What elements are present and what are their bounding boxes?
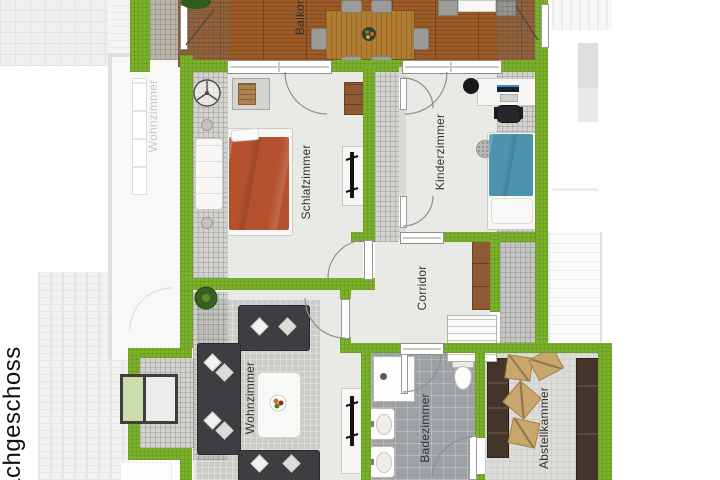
floor-plan-canvas: Balkon Wohnzimmer Schlafzimmer Kinderzim… — [0, 0, 720, 480]
neighbor-window — [132, 78, 147, 195]
left-outer-wall — [180, 55, 193, 348]
sofa-chaise-left — [197, 343, 241, 455]
shower — [373, 356, 415, 402]
coffee-table — [257, 372, 301, 438]
room-label-schlafzimmer: Schlafzimmer — [299, 144, 313, 219]
right-outer-wall — [535, 0, 548, 352]
bedroom-closet-wall — [363, 67, 375, 238]
room-label-badezimmer: Badezimmer — [418, 393, 432, 462]
kids-corridor-door-frame — [400, 232, 444, 244]
room-label-balkon: Balkon — [293, 0, 307, 35]
closet-door — [400, 78, 407, 110]
roof-overhang-hatch — [150, 0, 178, 60]
bedroom-wardrobe — [232, 78, 270, 110]
door-leaf — [341, 299, 350, 339]
office-chair — [497, 105, 521, 123]
room-label-kinderzimmer: Kinderzimmer — [433, 114, 447, 190]
monitor-icon — [497, 85, 519, 92]
neighbor-wall — [108, 53, 112, 360]
stairwell-faint-box — [578, 43, 598, 88]
corridor-left-wall — [340, 288, 351, 299]
stool-black — [463, 78, 479, 94]
entrance-stairs — [447, 315, 497, 362]
room-label-abstellkammer: Abstellkammer — [537, 387, 551, 469]
room-label-wohnzimmer: Wohnzimmer — [243, 362, 257, 434]
office-chair-armrest — [519, 107, 523, 119]
closet-kids-wall — [399, 108, 406, 196]
corridor-right-wall — [490, 232, 500, 312]
roof-slope-hatch — [500, 242, 535, 343]
neighbor-room-label: Wohnzimmer — [146, 80, 160, 152]
wall-knob — [201, 119, 213, 131]
door-leaf — [469, 436, 477, 480]
office-chair-armrest — [494, 107, 498, 119]
room-label-corridor: Corridor — [415, 266, 429, 311]
corridor-top-wall — [442, 232, 535, 242]
storage-box — [508, 417, 541, 448]
balcony-access-door — [180, 5, 188, 50]
balcony-left-wall — [130, 0, 150, 72]
door-leaf — [401, 354, 408, 394]
bedroom-tv-console — [342, 146, 365, 206]
dining-chair — [341, 0, 362, 13]
stairwell-faint-box — [578, 88, 598, 122]
sofa-bottom — [238, 450, 320, 480]
living-roof-window — [120, 374, 178, 424]
storage-shelf-right — [576, 358, 600, 480]
storage-right-wall — [598, 345, 612, 480]
living-bath-wall — [361, 352, 371, 480]
bed-duvet-red — [229, 137, 289, 230]
roof-overhang-hatch — [497, 0, 535, 67]
neighbor-wall-line — [552, 188, 598, 191]
bed-duvet-blue — [489, 134, 533, 196]
dining-table — [325, 10, 415, 60]
bed-pillow — [231, 128, 260, 142]
lounge-seat — [438, 0, 458, 16]
bedroom-balcony-window — [227, 60, 332, 74]
wall-knob — [201, 217, 213, 229]
bath-storage-wall — [475, 352, 485, 438]
dining-chair — [311, 28, 327, 50]
dining-chair — [413, 28, 429, 50]
stairwell-faint-steps — [548, 232, 602, 342]
roof-slope-hatch — [375, 67, 399, 242]
floor-title: Dachgeschoss — [0, 346, 27, 480]
corridor-sideboard — [472, 236, 492, 310]
living-jog-wall — [180, 456, 192, 480]
sink — [369, 408, 395, 440]
bed-pillow — [491, 198, 533, 224]
shower-drain-icon — [380, 373, 387, 380]
roof-stripes-topright — [552, 0, 612, 30]
sink — [369, 446, 395, 478]
door-leaf — [364, 240, 373, 280]
sofa-top — [238, 305, 310, 351]
neighbor-roof-texture — [0, 0, 108, 66]
kids-balcony-window — [402, 60, 502, 74]
stairwell-balcony-door — [541, 4, 549, 48]
neighbor-terrace-block — [120, 462, 172, 480]
keyboard-icon — [500, 94, 518, 102]
dining-chair — [371, 0, 392, 13]
daybed — [195, 138, 223, 210]
lounge-table — [458, 0, 496, 12]
closet-door — [400, 196, 407, 228]
